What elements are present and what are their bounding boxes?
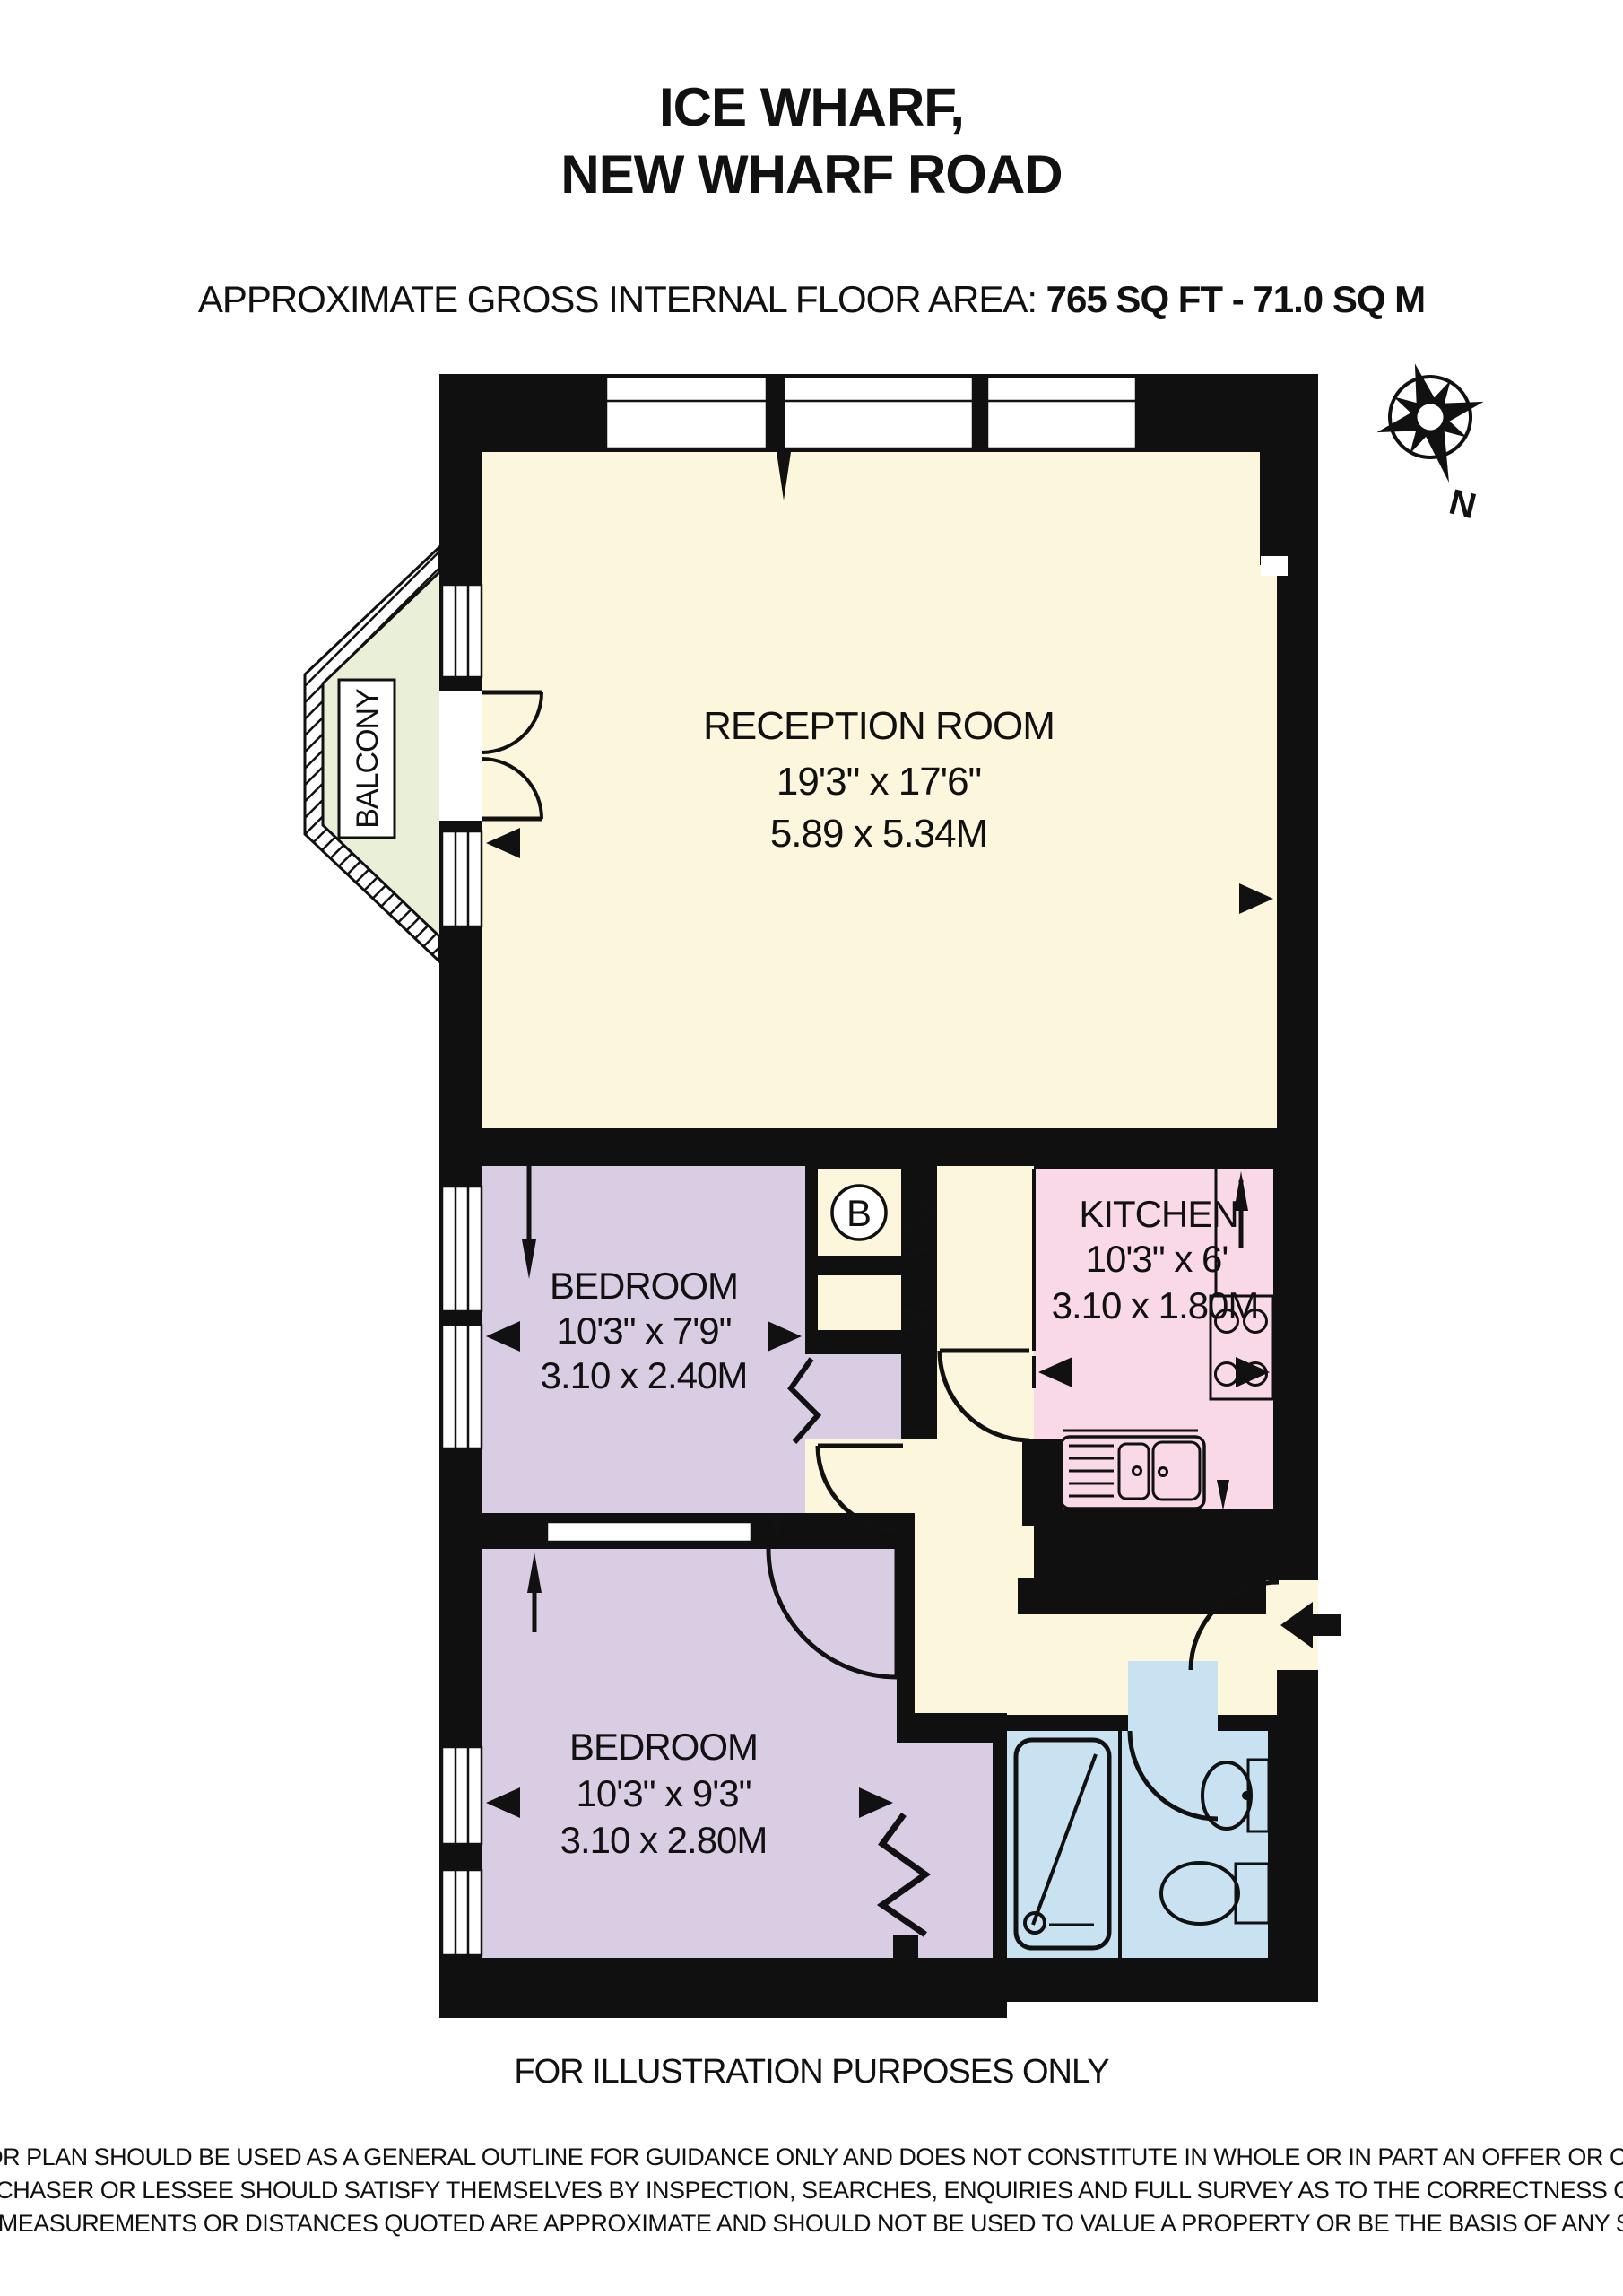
property-title-line1: ICE WHARF, xyxy=(659,77,964,137)
wall-step-notch xyxy=(1261,556,1288,576)
kitchen-name: KITCHEN xyxy=(1079,1193,1237,1235)
balcony-label: BALCONY xyxy=(351,689,385,829)
wall-cupboard-shelf2 xyxy=(818,1330,937,1352)
bedroom1-name: BEDROOM xyxy=(550,1265,738,1307)
bedroom2-metric: 3.10 x 2.80M xyxy=(560,1819,768,1861)
kitchen-metric: 3.10 x 1.80M xyxy=(1052,1284,1259,1326)
window-bedroom2-2 xyxy=(442,1870,482,1955)
bedroom1-imperial: 10'3" x 7'9" xyxy=(557,1309,732,1352)
reception-metric: 5.89 x 5.34M xyxy=(770,812,987,856)
cupboard-lower-floor xyxy=(818,1275,901,1330)
compass-rose-icon: N xyxy=(1357,344,1506,526)
reception-imperial: 19'3" x 17'6" xyxy=(777,760,981,804)
reception-name: RECEPTION ROOM xyxy=(703,704,1055,748)
illustration-note: FOR ILLUSTRATION PURPOSES ONLY xyxy=(514,2053,1109,2091)
built-in-wardrobe xyxy=(547,1522,751,1542)
disclaimer-line3: ANY AREAS, MEASUREMENTS OR DISTANCES QUO… xyxy=(0,2210,1623,2237)
window-top-3 xyxy=(987,377,1136,448)
window-top-1 xyxy=(606,377,767,448)
wardrobe-box xyxy=(547,1522,751,1542)
disclaimer-line2: ANY INTENDING PURCHASER OR LESSEE SHOULD… xyxy=(0,2177,1623,2204)
window-bedroom2-1 xyxy=(442,1747,482,1844)
wall-cupboard-shelf1 xyxy=(818,1256,937,1275)
wall-bathroom-left xyxy=(993,1731,1007,1958)
wall-kitchen-top xyxy=(1034,1128,1318,1169)
floor-area-value: 765 SQ FT - 71.0 SQ M xyxy=(1037,278,1425,320)
floorplan-page: ICE WHARF, NEW WHARF ROAD APPROXIMATE GR… xyxy=(0,0,1623,2296)
floor-area-line: APPROXIMATE GROSS INTERNAL FLOOR AREA: 7… xyxy=(198,278,1425,320)
bedroom2-name: BEDROOM xyxy=(569,1726,758,1768)
floor-area-label: APPROXIMATE GROSS INTERNAL FLOOR AREA: xyxy=(198,278,1037,320)
wall-kitchen-bottom-left xyxy=(1029,1510,1198,1526)
disclaimer: THIS FLOOR PLAN SHOULD BE USED AS A GENE… xyxy=(0,2144,1623,2237)
property-title-line2: NEW WHARF ROAD xyxy=(560,144,1062,204)
compass-north-label: N xyxy=(1445,483,1480,527)
basin-tap xyxy=(1242,1791,1251,1800)
window-bedroom1-2 xyxy=(442,1325,482,1448)
boiler-label: B xyxy=(846,1192,872,1234)
bedroom1-metric: 3.10 x 2.40M xyxy=(541,1354,748,1396)
floorplan-canvas: ICE WHARF, NEW WHARF ROAD APPROXIMATE GR… xyxy=(0,0,1623,2296)
window-bedroom1-1 xyxy=(442,1187,482,1311)
wall-nook-right xyxy=(901,1354,937,1439)
bedroom2-imperial: 10'3" x 9'3" xyxy=(577,1772,751,1814)
balcony: BALCONY xyxy=(305,547,439,961)
kitchen-imperial: 10'3" x 6' xyxy=(1086,1238,1228,1280)
wall-bathroom-top-right xyxy=(1218,1715,1277,1731)
wall-bedroom2-bathroom-corner xyxy=(897,1713,1007,1743)
wall-reception-bedroom1 xyxy=(439,1128,901,1166)
wall-kitchen-bottom-right xyxy=(1195,1510,1318,1553)
bedroom2-closet-stub xyxy=(893,1935,918,1958)
french-door-opening xyxy=(439,691,482,821)
window-top-2 xyxy=(784,377,973,448)
bathroom-door-recess xyxy=(1128,1661,1218,1731)
wall-bathroom-top-left xyxy=(1007,1715,1128,1731)
wall-bedroom2-right xyxy=(897,1513,915,1743)
wall-bedroom1-right xyxy=(805,1161,818,1354)
window-reception-left-2 xyxy=(442,831,482,926)
disclaimer-line1: THIS FLOOR PLAN SHOULD BE USED AS A GENE… xyxy=(0,2144,1623,2170)
window-reception-left-1 xyxy=(442,585,482,677)
